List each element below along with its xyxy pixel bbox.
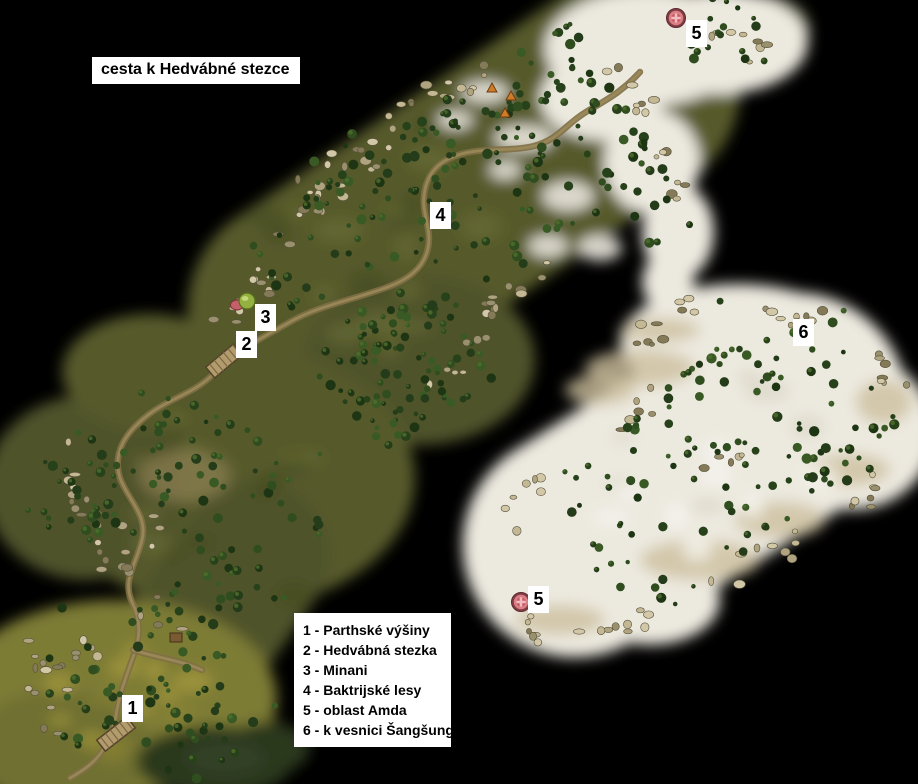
legend-item: 6 - k vesnici Šangšung	[303, 720, 447, 740]
map-marker-3: 3	[255, 304, 276, 331]
map-marker-6: 6	[793, 319, 814, 346]
map-legend: 1 - Parthské výšiny2 - Hedvábná stezka3 …	[294, 613, 451, 747]
terrain-canvas	[0, 0, 918, 784]
legend-item: 4 - Baktrijské lesy	[303, 680, 447, 700]
map-title: cesta k Hedvábné stezce	[92, 57, 300, 84]
portal-icon	[667, 9, 686, 28]
world-map: 1234556 cesta k Hedvábné stezce 1 - Part…	[0, 0, 918, 784]
legend-item: 1 - Parthské výšiny	[303, 620, 447, 640]
map-marker-5: 5	[528, 586, 549, 613]
map-marker-5: 5	[686, 20, 707, 47]
hut-icon	[170, 633, 182, 642]
legend-item: 3 - Minani	[303, 660, 447, 680]
map-marker-2: 2	[236, 331, 257, 358]
legend-item: 5 - oblast Amda	[303, 700, 447, 720]
map-marker-4: 4	[430, 202, 451, 229]
map-marker-1: 1	[122, 695, 143, 722]
legend-item: 2 - Hedvábná stezka	[303, 640, 447, 660]
legend-list: 1 - Parthské výšiny2 - Hedvábná stezka3 …	[303, 620, 447, 740]
